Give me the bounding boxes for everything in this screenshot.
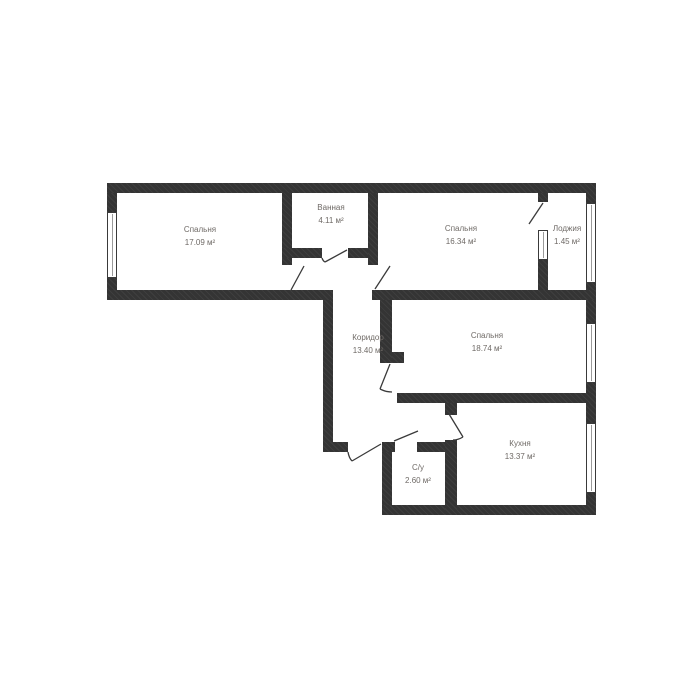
wall-wc-top-left xyxy=(382,442,395,452)
room-name-loggia: Лоджия xyxy=(553,222,581,235)
wall-loggia-divider-top xyxy=(538,193,548,202)
window-loggia-divider xyxy=(538,230,548,260)
room-area-bathroom: 4.11 м² xyxy=(317,214,344,227)
room-name-corridor: Коридор xyxy=(352,331,384,344)
room-area-wc: 2.60 м² xyxy=(405,474,431,487)
wall-kitchen-divider-stub xyxy=(445,403,457,415)
wall-outer-bottom xyxy=(382,505,596,515)
floor-plan-canvas: Спальня17.09 м²Ванная4.11 м²Спальня16.34… xyxy=(0,0,700,700)
room-area-bedroom-1: 17.09 м² xyxy=(184,236,216,249)
room-label-wc: С/у2.60 м² xyxy=(405,461,431,487)
wall-bedroom3-bottom xyxy=(397,393,596,403)
room-area-corridor: 13.40 м² xyxy=(352,344,384,357)
room-area-bedroom-3: 18.74 м² xyxy=(471,342,503,355)
window-loggia-pane xyxy=(591,205,592,281)
room-label-loggia: Лоджия1.45 м² xyxy=(553,222,581,248)
room-name-kitchen: Кухня xyxy=(505,437,535,450)
room-name-wc: С/у xyxy=(405,461,431,474)
room-label-bedroom-2: Спальня16.34 м² xyxy=(445,222,477,248)
wall-outer-left-upper xyxy=(107,193,117,212)
room-name-bedroom-3: Спальня xyxy=(471,329,503,342)
wall-outer-right-seg2 xyxy=(586,283,596,323)
window-bedroom-1-pane xyxy=(112,214,113,276)
door-loggia-swing xyxy=(529,203,543,224)
wall-outer-top xyxy=(107,183,596,193)
room-name-bedroom-2: Спальня xyxy=(445,222,477,235)
wall-outer-right-seg1 xyxy=(586,193,596,203)
window-bedroom-3-pane xyxy=(591,325,592,381)
door-entrance-swing xyxy=(348,444,381,461)
door-bedroom-2-swing xyxy=(375,266,390,289)
door-bedroom-1-swing xyxy=(291,266,304,290)
room-label-corridor: Коридор13.40 м² xyxy=(352,331,384,357)
room-area-loggia: 1.45 м² xyxy=(553,235,581,248)
wall-section1-bottom xyxy=(107,290,333,300)
room-area-bedroom-2: 16.34 м² xyxy=(445,235,477,248)
window-loggia xyxy=(586,203,596,283)
room-name-bedroom-1: Спальня xyxy=(184,223,216,236)
room-area-kitchen: 13.37 м² xyxy=(505,450,535,463)
window-kitchen-pane xyxy=(591,425,592,491)
room-label-kitchen: Кухня13.37 м² xyxy=(505,437,535,463)
room-label-bedroom-3: Спальня18.74 м² xyxy=(471,329,503,355)
wall-section2-bottom xyxy=(372,290,596,300)
wall-kitchen-divider-low xyxy=(445,440,457,515)
wall-bathroom-right xyxy=(368,193,378,265)
door-wc-swing xyxy=(394,431,418,441)
wall-corridor-bottom xyxy=(323,442,348,452)
window-bedroom-1 xyxy=(107,212,117,278)
window-kitchen xyxy=(586,423,596,493)
room-name-bathroom: Ванная xyxy=(317,201,344,214)
window-bedroom-3 xyxy=(586,323,596,383)
room-label-bathroom: Ванная4.11 м² xyxy=(317,201,344,227)
wall-bathroom-bottom-l xyxy=(282,248,322,258)
wall-outer-right-seg4 xyxy=(586,493,596,505)
wall-corridor-left xyxy=(323,300,333,452)
door-kitchen-swing xyxy=(449,414,463,440)
wall-loggia-divider-low xyxy=(538,260,548,290)
door-bedroom-3-swing xyxy=(380,364,392,392)
wall-bedroom3-notch xyxy=(392,352,404,363)
room-label-bedroom-1: Спальня17.09 м² xyxy=(184,223,216,249)
window-loggia-divider-pane xyxy=(543,232,544,258)
door-bathroom-swing xyxy=(322,250,347,262)
wall-outer-right-seg3 xyxy=(586,383,596,423)
